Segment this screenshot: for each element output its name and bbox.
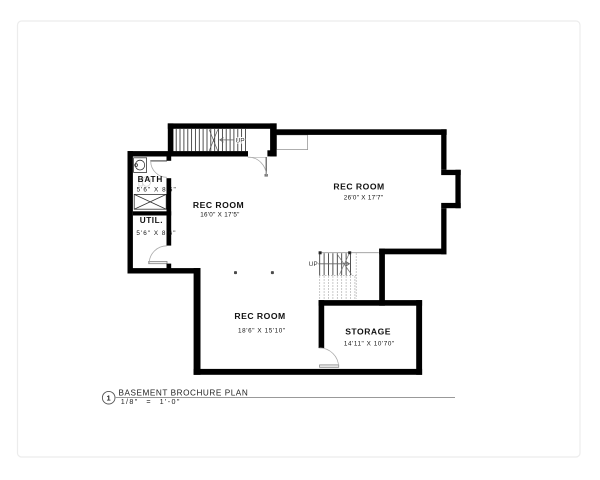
svg-text:5'6" X 8'6": 5'6" X 8'6"	[136, 230, 176, 237]
svg-text:1: 1	[107, 394, 111, 403]
svg-text:REC ROOM: REC ROOM	[234, 311, 285, 321]
svg-text:16'0" X 17'5": 16'0" X 17'5"	[200, 211, 240, 218]
svg-text:REC ROOM: REC ROOM	[333, 181, 384, 191]
svg-text:REC ROOM: REC ROOM	[193, 200, 244, 210]
svg-text:1/8" = 1'-0": 1/8" = 1'-0"	[121, 397, 181, 406]
svg-text:18'6" X 15'10": 18'6" X 15'10"	[238, 328, 286, 335]
svg-text:UP: UP	[309, 261, 318, 268]
svg-text:14'11" X 10'70": 14'11" X 10'70"	[344, 341, 395, 348]
svg-text:BASEMENT BROCHURE PLAN: BASEMENT BROCHURE PLAN	[119, 388, 249, 397]
svg-text:STORAGE: STORAGE	[345, 326, 391, 336]
svg-text:UP: UP	[236, 137, 245, 144]
svg-text:UTIL.: UTIL.	[140, 216, 163, 225]
svg-text:26'0" X 17'7": 26'0" X 17'7"	[344, 194, 384, 201]
svg-text:BATH: BATH	[138, 175, 164, 184]
